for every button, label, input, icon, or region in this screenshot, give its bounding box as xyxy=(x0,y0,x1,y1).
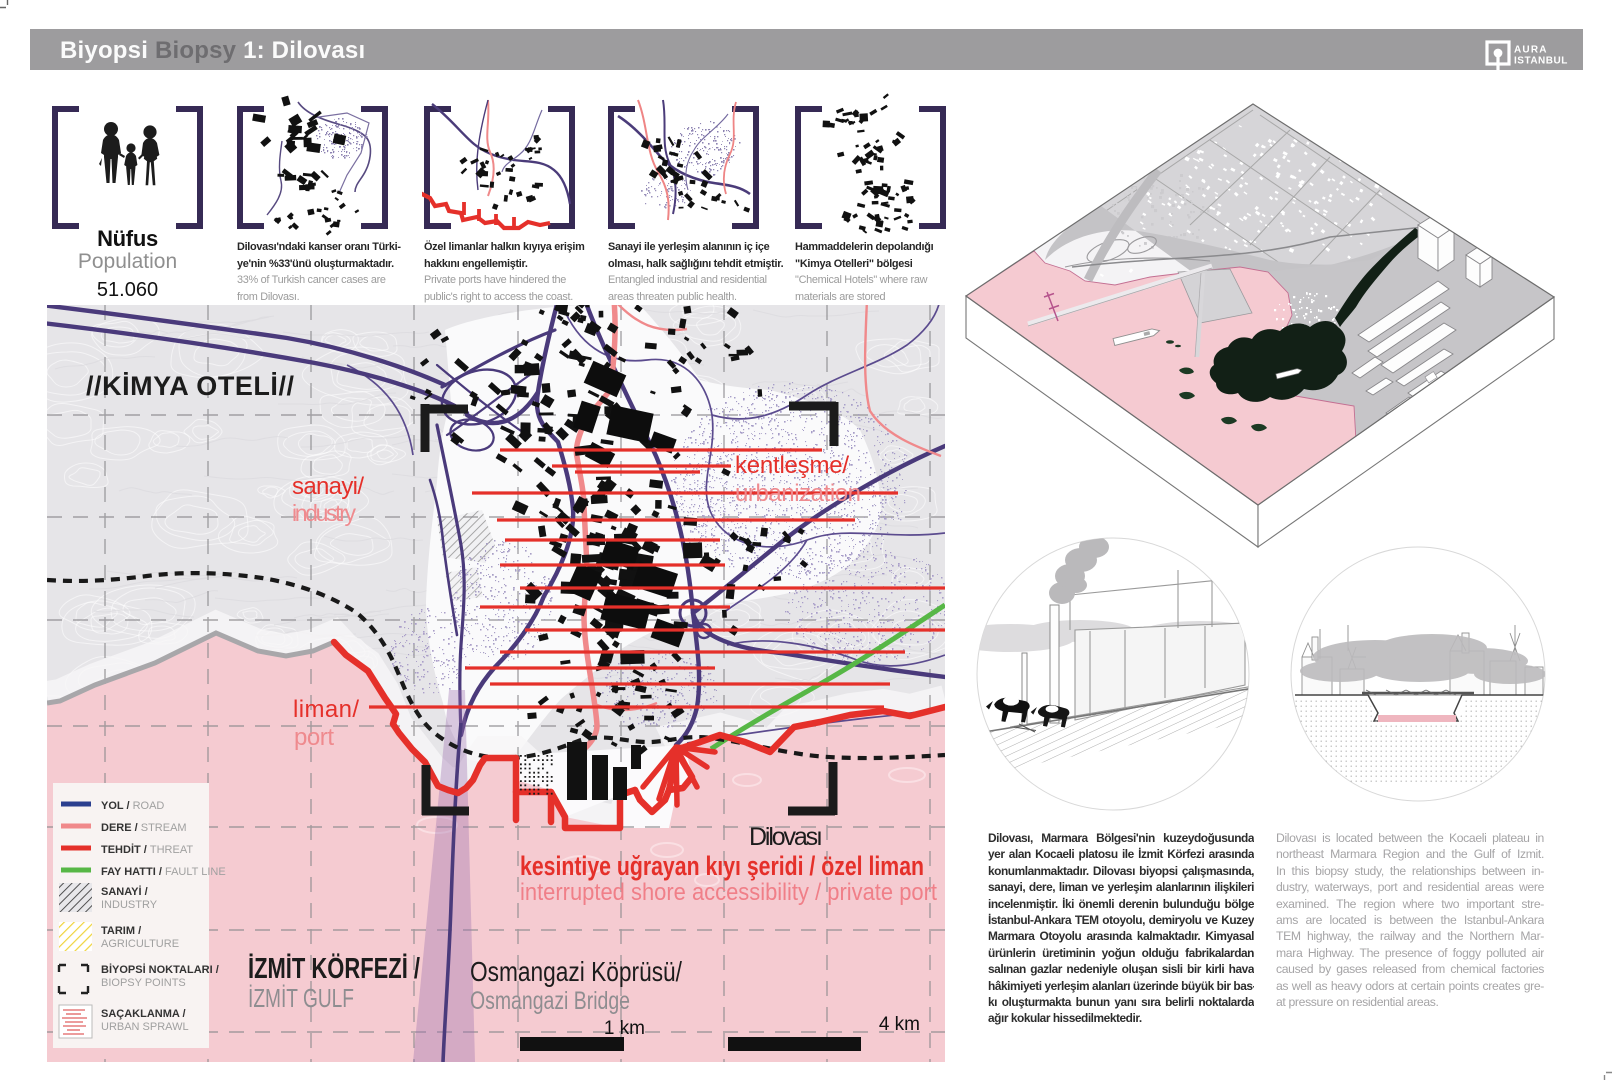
svg-text:SAÇAKLANMA /: SAÇAKLANMA / xyxy=(101,1008,186,1020)
svg-text:Dilovası: Dilovası xyxy=(749,823,823,851)
svg-text:TARIM /: TARIM / xyxy=(101,925,141,937)
svg-text:kesintiye uğrayan kıyı şeridi: kesintiye uğrayan kıyı şeridi / özel lim… xyxy=(520,851,924,881)
svg-text:URBAN SPRAWL: URBAN SPRAWL xyxy=(101,1021,189,1033)
svg-text:DERE / STREAM: DERE / STREAM xyxy=(101,822,187,834)
svg-text:sanayi/: sanayi/ xyxy=(292,473,364,500)
svg-text:urbanization: urbanization xyxy=(735,480,861,507)
svg-text:AGRICULTURE: AGRICULTURE xyxy=(101,938,179,950)
svg-text:TEHDİT / THREAT: TEHDİT / THREAT xyxy=(101,843,193,856)
svg-text:port: port xyxy=(294,724,334,751)
svg-text:Osmangazi Köprüsü/: Osmangazi Köprüsü/ xyxy=(470,956,682,987)
svg-text:INDUSTRY: INDUSTRY xyxy=(101,899,158,911)
svg-text://KİMYA OTELİ//: //KİMYA OTELİ// xyxy=(86,371,294,401)
svg-text:YOL / ROAD: YOL / ROAD xyxy=(101,800,164,812)
svg-text:BİYOPSİ NOKTALARI /: BİYOPSİ NOKTALARI / xyxy=(101,963,219,976)
svg-text:Osmangazi Bridge: Osmangazi Bridge xyxy=(470,987,630,1015)
svg-text:FAY HATTI / FAULT LINE: FAY HATTI / FAULT LINE xyxy=(101,866,226,878)
svg-text:industry: industry xyxy=(292,500,357,526)
svg-text:İZMİT GULF: İZMİT GULF xyxy=(248,983,354,1013)
svg-text:4 km: 4 km xyxy=(879,1014,920,1035)
svg-text:SANAYİ /: SANAYİ / xyxy=(101,885,148,898)
svg-text:1 km: 1 km xyxy=(604,1018,645,1039)
svg-text:liman/: liman/ xyxy=(293,696,359,723)
svg-text:AURA: AURA xyxy=(1514,45,1548,56)
svg-text:BIOPSY POINTS: BIOPSY POINTS xyxy=(101,977,186,989)
svg-text:İZMİT KÖRFEZİ /: İZMİT KÖRFEZİ / xyxy=(248,952,420,985)
svg-text:ISTANBUL: ISTANBUL xyxy=(1514,56,1568,67)
svg-text:kentleşme/: kentleşme/ xyxy=(735,452,849,479)
svg-text:interrupted shore accessibilit: interrupted shore accessibility / privat… xyxy=(520,879,937,906)
